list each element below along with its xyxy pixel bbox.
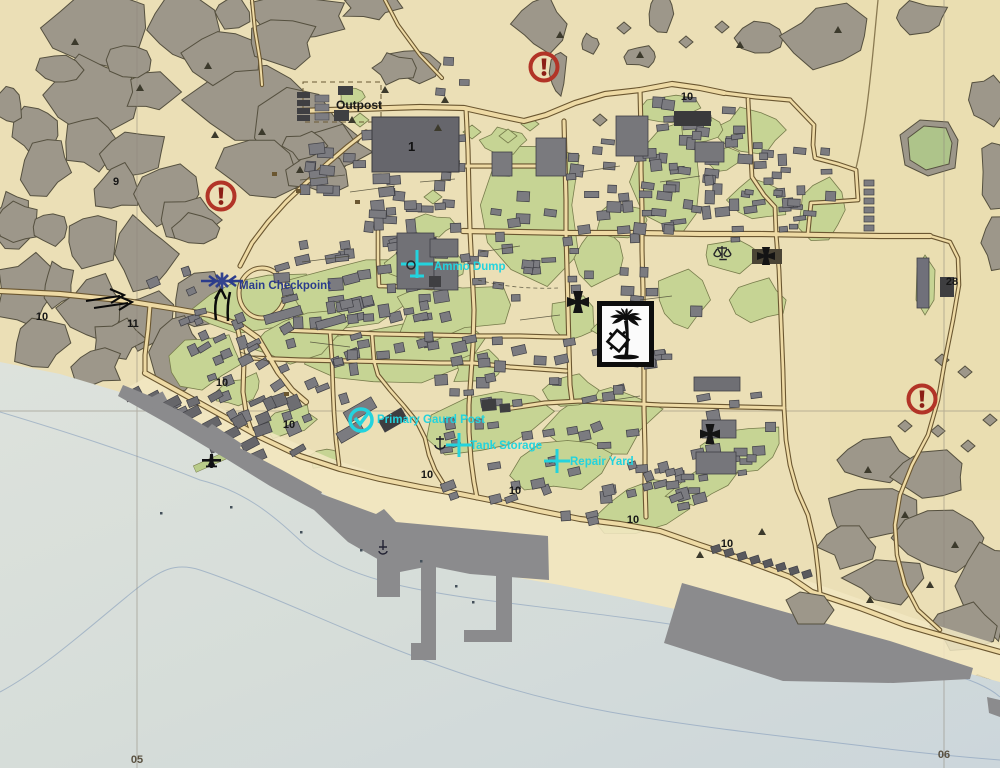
- svg-text:10: 10: [721, 538, 733, 550]
- svg-text:Tank Storage: Tank Storage: [470, 440, 542, 452]
- svg-text:10: 10: [509, 485, 521, 497]
- svg-text:10: 10: [283, 419, 295, 431]
- svg-text:10: 10: [216, 377, 228, 389]
- svg-text:06: 06: [938, 749, 950, 761]
- svg-text:05: 05: [131, 754, 143, 766]
- svg-text:10: 10: [421, 469, 433, 481]
- svg-text:11: 11: [127, 318, 139, 330]
- svg-text:Ammo Dump: Ammo Dump: [434, 261, 506, 273]
- svg-text:28: 28: [946, 276, 958, 288]
- svg-text:10: 10: [681, 91, 693, 103]
- svg-text:Outpost: Outpost: [336, 98, 382, 112]
- svg-text:Main Checkpoint: Main Checkpoint: [239, 280, 331, 292]
- svg-text:9: 9: [113, 176, 119, 188]
- svg-text:10: 10: [36, 311, 48, 323]
- svg-text:Repair Yard: Repair Yard: [570, 456, 634, 468]
- svg-text:10: 10: [627, 514, 639, 526]
- svg-text:1: 1: [408, 139, 415, 154]
- svg-text:Primary Gaurd Post: Primary Gaurd Post: [377, 414, 485, 426]
